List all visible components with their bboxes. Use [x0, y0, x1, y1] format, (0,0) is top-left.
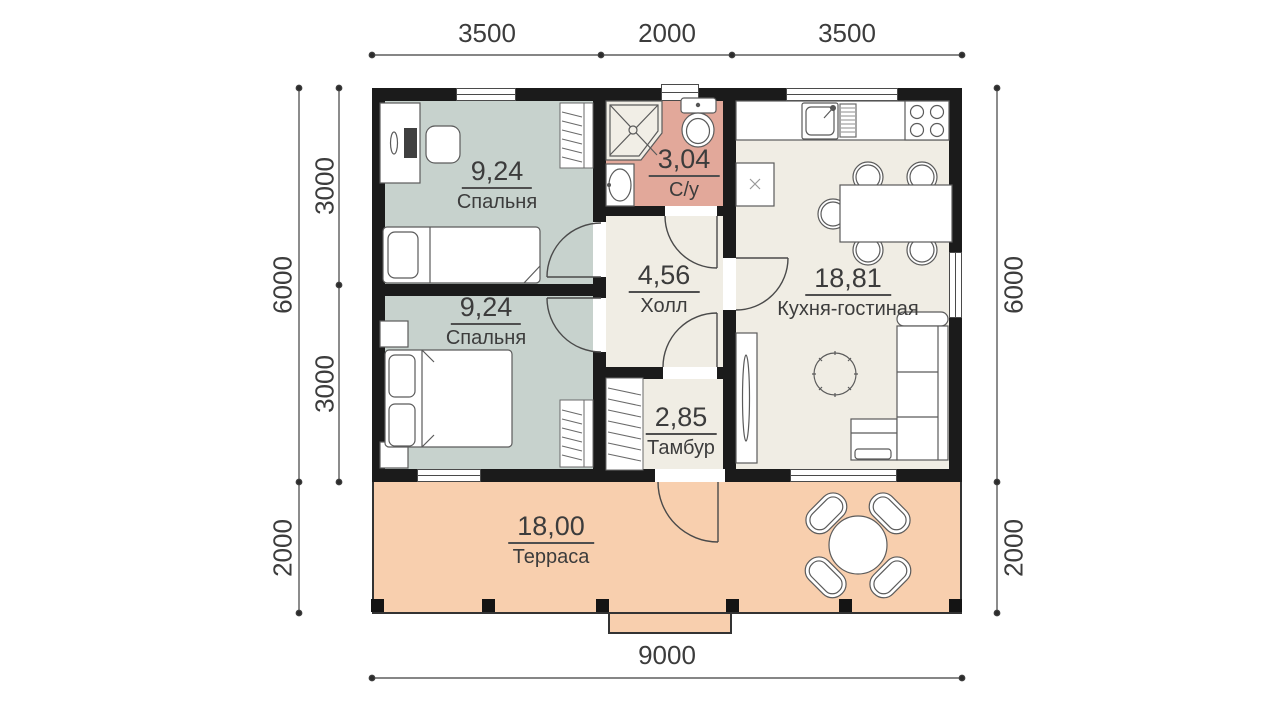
label-bedroom-top: 9,24 Спальня: [457, 157, 537, 213]
vestibule-area: 2,85: [646, 403, 717, 435]
bedroom-bottom-area: 9,24: [451, 293, 522, 325]
appliance-spot: [736, 163, 774, 206]
dining-set: [818, 162, 952, 265]
single-bed: [383, 227, 540, 283]
wardrobe-vestibule: [606, 378, 643, 470]
kitchen-sink: [802, 103, 838, 139]
vestibule-name: Тамбур: [646, 438, 717, 459]
tv-unit: [736, 333, 757, 463]
label-terrace: 18,00 Терраса: [508, 512, 594, 568]
bathroom-area: 3,04: [649, 145, 720, 177]
hall-area: 4,56: [629, 261, 700, 293]
dim-top-center: 2000: [638, 18, 696, 49]
wardrobe-bedroom-top: [560, 103, 593, 168]
terrace-table: [829, 516, 887, 574]
label-hall: 4,56 Холл: [629, 261, 700, 317]
hall-name: Холл: [629, 296, 700, 317]
desk: [380, 103, 420, 183]
plan-overlay: [0, 0, 1280, 720]
stove: [905, 101, 949, 140]
label-vestibule: 2,85 Тамбур: [646, 403, 717, 459]
dim-bottom-total: 9000: [638, 640, 696, 671]
terrace-name: Терраса: [508, 547, 594, 568]
desk-chair: [426, 126, 460, 163]
dim-right-terrace: 2000: [999, 519, 1030, 577]
bedroom-top-name: Спальня: [457, 192, 537, 213]
bathroom-name: С/у: [649, 180, 720, 201]
corner-sofa: [851, 312, 948, 460]
kitchen-living-name: Кухня-гостиная: [777, 299, 919, 320]
dim-left-upper: 3000: [310, 157, 341, 215]
floor-plan: 9,24 Спальня 3,04 С/у 4,56 Холл 18,81 Ку…: [0, 0, 1280, 720]
bedroom-top-area: 9,24: [462, 157, 533, 189]
label-bathroom: 3,04 С/у: [649, 145, 720, 201]
dim-left-total: 6000: [268, 256, 299, 314]
dim-top-left: 3500: [458, 18, 516, 49]
dim-left-terrace: 2000: [268, 519, 299, 577]
terrace-area: 18,00: [508, 512, 594, 544]
bathroom-sink: [606, 164, 634, 206]
label-bedroom-bottom: 9,24 Спальня: [446, 293, 526, 349]
bedroom-bottom-name: Спальня: [446, 328, 526, 349]
wardrobe-bedroom-bottom: [560, 400, 593, 467]
dim-top-right: 3500: [818, 18, 876, 49]
label-kitchen-living: 18,81 Кухня-гостиная: [777, 264, 919, 320]
round-rug: [812, 351, 858, 397]
kitchen-living-area: 18,81: [805, 264, 891, 296]
double-bed: [385, 350, 512, 447]
dim-left-lower: 3000: [310, 355, 341, 413]
drying-rack: [840, 104, 856, 137]
dim-right-total: 6000: [999, 256, 1030, 314]
toilet: [681, 98, 716, 147]
